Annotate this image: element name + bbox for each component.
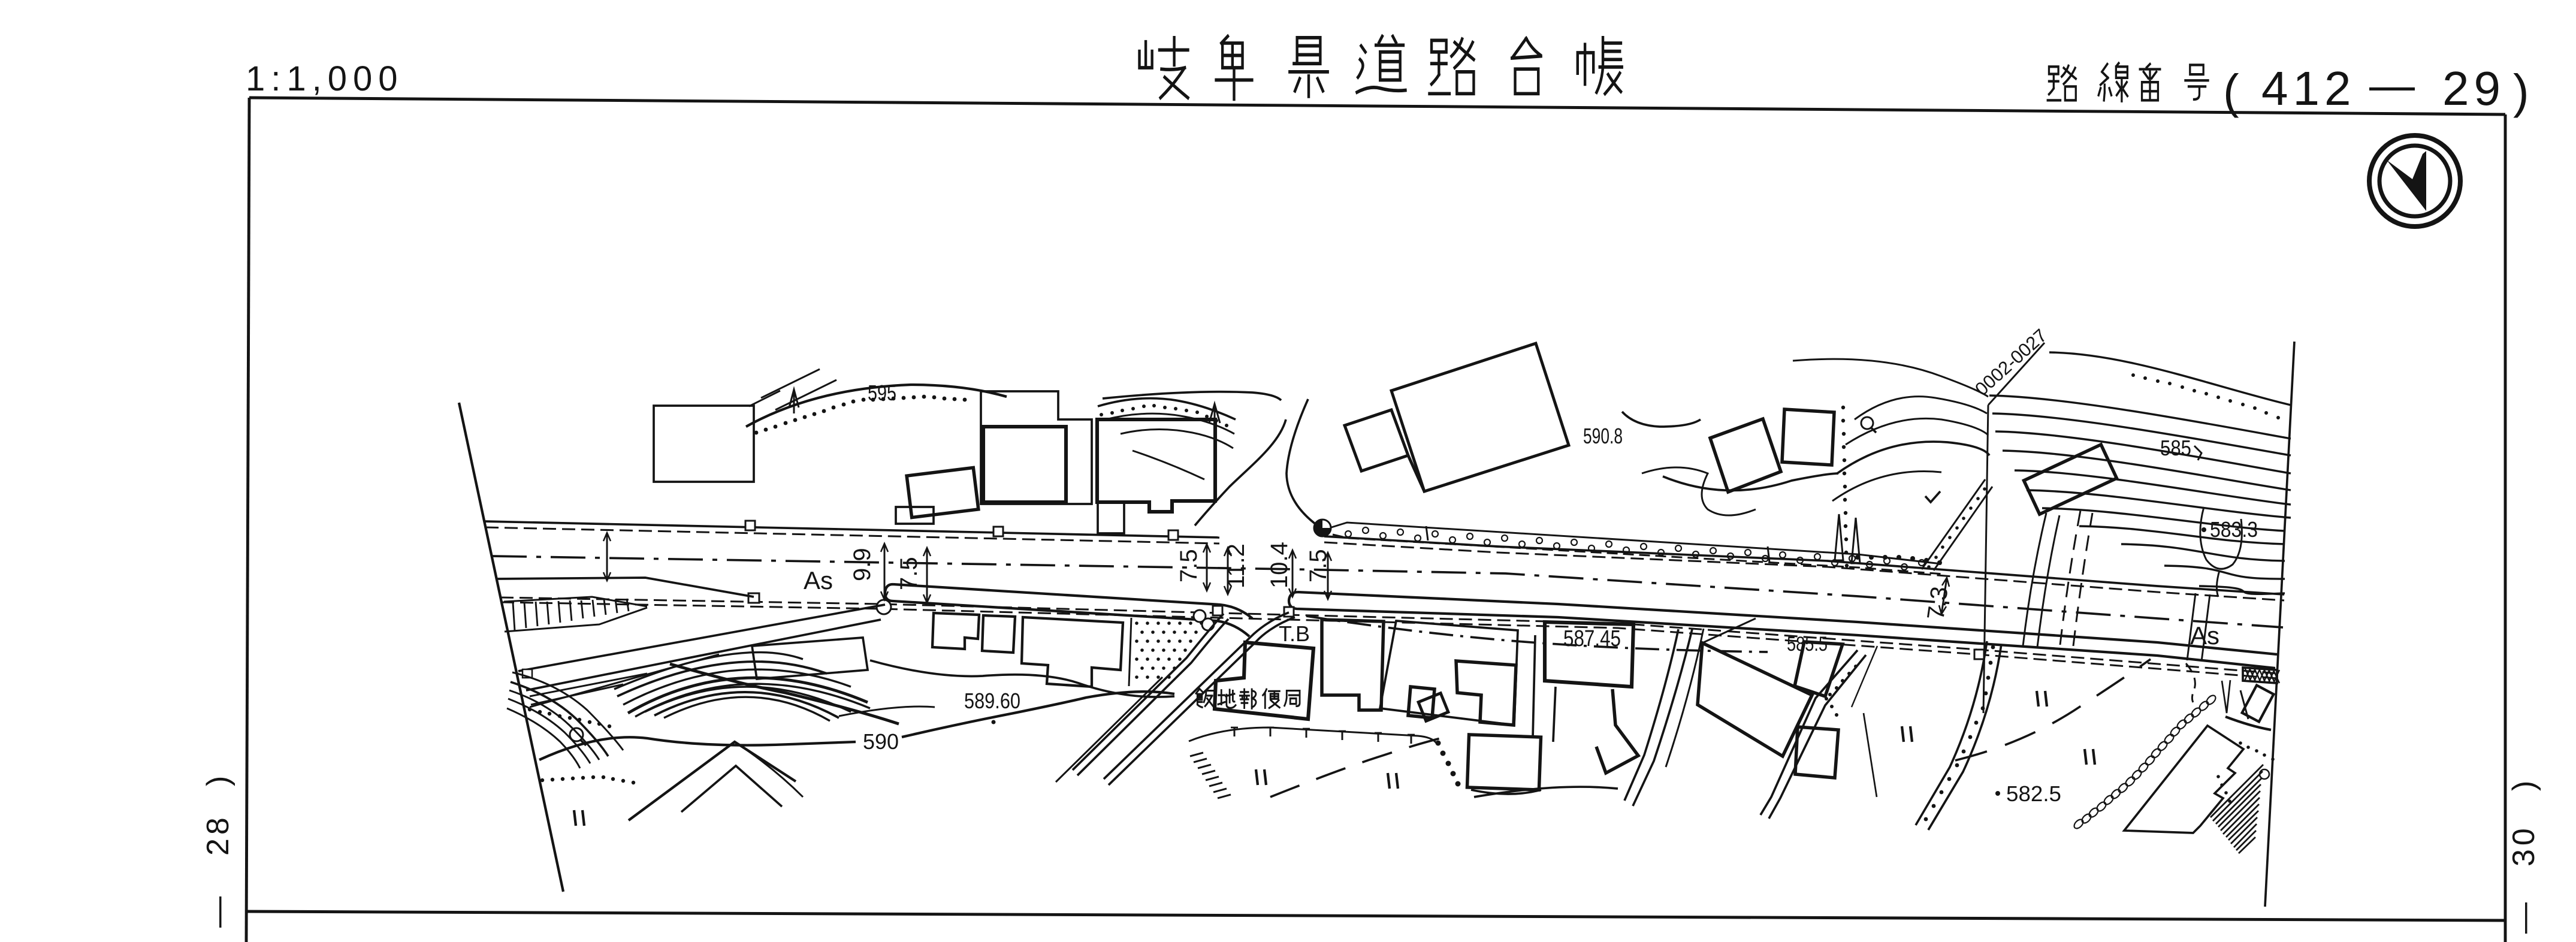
svg-text:590: 590 (863, 729, 899, 754)
svg-text:As: As (804, 566, 833, 594)
svg-text:587.45: 587.45 (1563, 626, 1621, 651)
svg-text:583.3: 583.3 (2210, 517, 2258, 542)
svg-text:—: — (2369, 60, 2415, 111)
svg-text:585: 585 (2160, 436, 2191, 460)
svg-text:7.5: 7.5 (1176, 549, 1202, 582)
svg-text:—: — (2506, 902, 2541, 934)
svg-text:1:1,000: 1:1,000 (246, 59, 404, 98)
svg-text:11.2: 11.2 (1223, 544, 1249, 588)
svg-text:7.5: 7.5 (1305, 549, 1331, 582)
svg-text:589.60: 589.60 (964, 689, 1020, 713)
svg-text:7.3: 7.3 (1922, 585, 1953, 621)
svg-text:): ) (2506, 781, 2541, 791)
svg-text:582.5: 582.5 (2006, 781, 2061, 806)
svg-text:(: ( (2223, 65, 2239, 118)
svg-text:7.5: 7.5 (896, 557, 922, 590)
svg-text:590.8: 590.8 (1583, 424, 1623, 448)
svg-text:10.4: 10.4 (1266, 542, 1292, 588)
svg-text:—: — (201, 896, 235, 928)
svg-text:28: 28 (201, 814, 235, 856)
svg-text:T.B: T.B (1279, 621, 1310, 646)
svg-text:9.9: 9.9 (849, 548, 875, 581)
svg-text:585.5: 585.5 (1787, 633, 1828, 656)
svg-text:30: 30 (2506, 825, 2541, 866)
svg-text:): ) (201, 776, 235, 786)
svg-text:29: 29 (2442, 62, 2505, 115)
svg-text:412: 412 (2261, 62, 2355, 115)
svg-text:): ) (2513, 65, 2529, 118)
